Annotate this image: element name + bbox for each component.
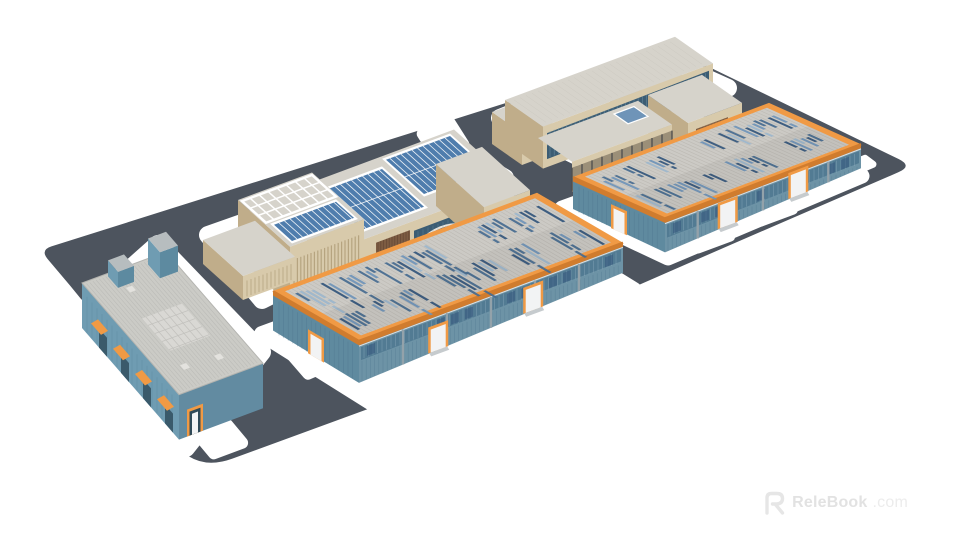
render-canvas: ReleBook.com [0, 0, 960, 540]
watermark-brand: ReleBook [792, 494, 867, 512]
industrial-park-3d-render [0, 0, 960, 540]
relebook-logo-icon [763, 490, 787, 516]
relebook-watermark: ReleBook.com [763, 490, 908, 516]
watermark-suffix: .com [873, 494, 908, 512]
